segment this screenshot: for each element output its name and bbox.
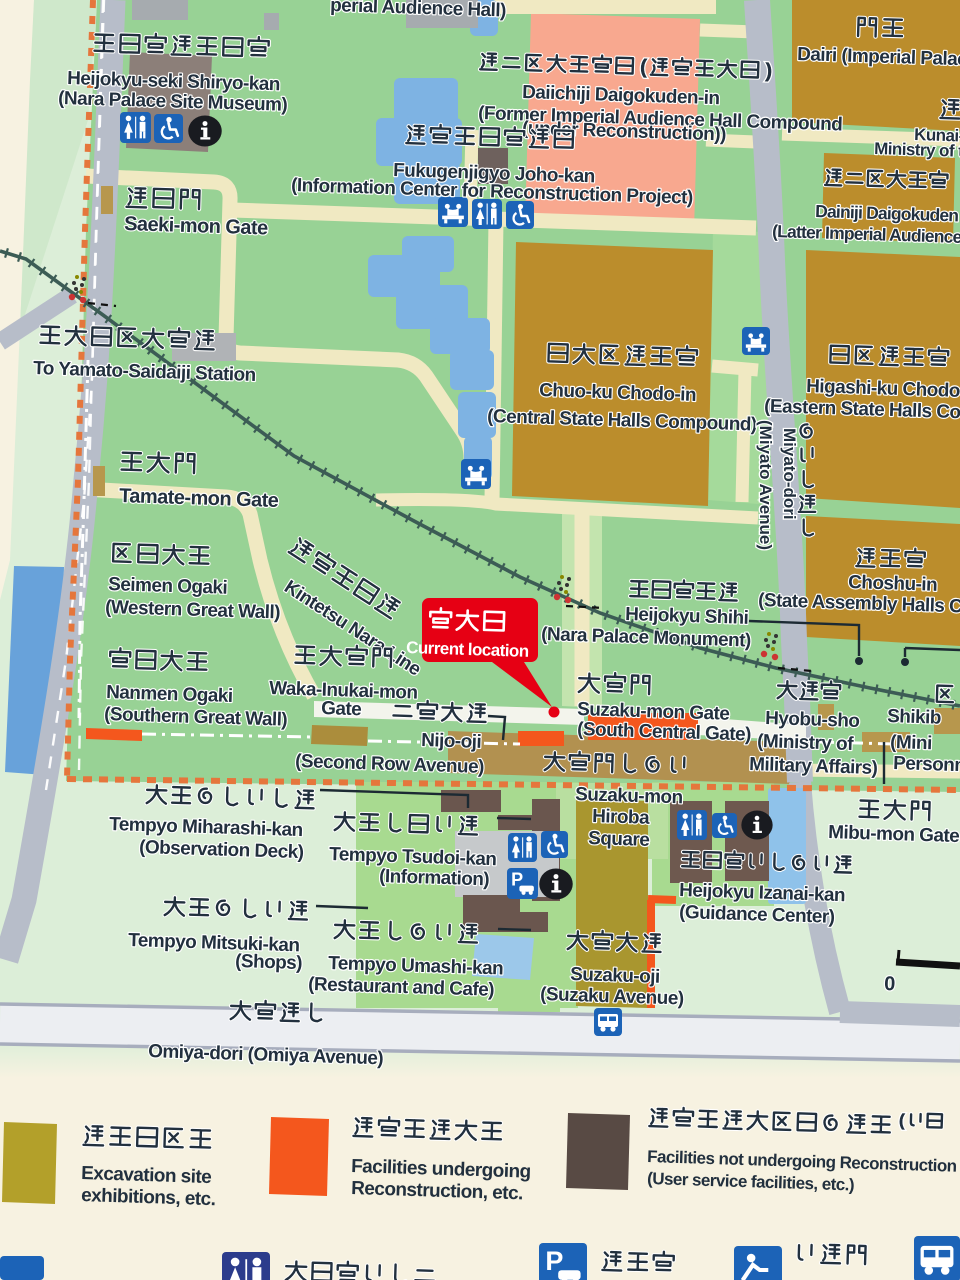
svg-text:0: 0 <box>884 973 896 995</box>
svg-text:Hyobu-sho: Hyobu-sho <box>765 708 860 732</box>
svg-text:(: ( <box>899 1111 906 1130</box>
svg-text:(Mini: (Mini <box>890 732 932 754</box>
svg-text:(: ( <box>640 56 648 78</box>
svg-text:Personn: Personn <box>893 753 960 776</box>
svg-text:Seimen Ogaki: Seimen Ogaki <box>108 574 228 599</box>
svg-text:Suzaku-mon: Suzaku-mon <box>575 784 683 808</box>
svg-text:Square: Square <box>588 828 650 851</box>
svg-text:): ) <box>765 60 772 82</box>
svg-text:Current location: Current location <box>406 638 529 661</box>
svg-text:Nanmen Ogaki: Nanmen Ogaki <box>106 682 233 707</box>
svg-text:Nijo-oji: Nijo-oji <box>421 730 482 753</box>
svg-text:(Ministry of: (Ministry of <box>757 731 855 755</box>
svg-text:(Information): (Information) <box>379 866 490 890</box>
svg-text:Excavation site: Excavation site <box>81 1163 212 1188</box>
svg-text:Miyato-dori: Miyato-dori <box>780 428 799 520</box>
svg-text:Mibu-mon Gate: Mibu-mon Gate <box>828 822 960 847</box>
svg-text:Ministry of th: Ministry of th <box>874 139 960 161</box>
svg-text:Heijokyu Shihi: Heijokyu Shihi <box>625 604 749 629</box>
svg-text:Shikib: Shikib <box>887 706 941 729</box>
svg-text:Military Affairs): Military Affairs) <box>749 754 878 779</box>
svg-text:exhibitions, etc.: exhibitions, etc. <box>81 1185 216 1210</box>
svg-text:Hiroba: Hiroba <box>592 806 650 829</box>
svg-text:Gate: Gate <box>321 698 362 720</box>
svg-text:Suzaku-oji: Suzaku-oji <box>570 964 660 988</box>
svg-text:(Shops): (Shops) <box>235 951 303 974</box>
svg-text:Saeki-mon Gate: Saeki-mon Gate <box>124 213 269 240</box>
svg-text:Choshu-in: Choshu-in <box>848 572 938 596</box>
svg-text:(Miyato Avenue): (Miyato Avenue) <box>756 420 775 550</box>
